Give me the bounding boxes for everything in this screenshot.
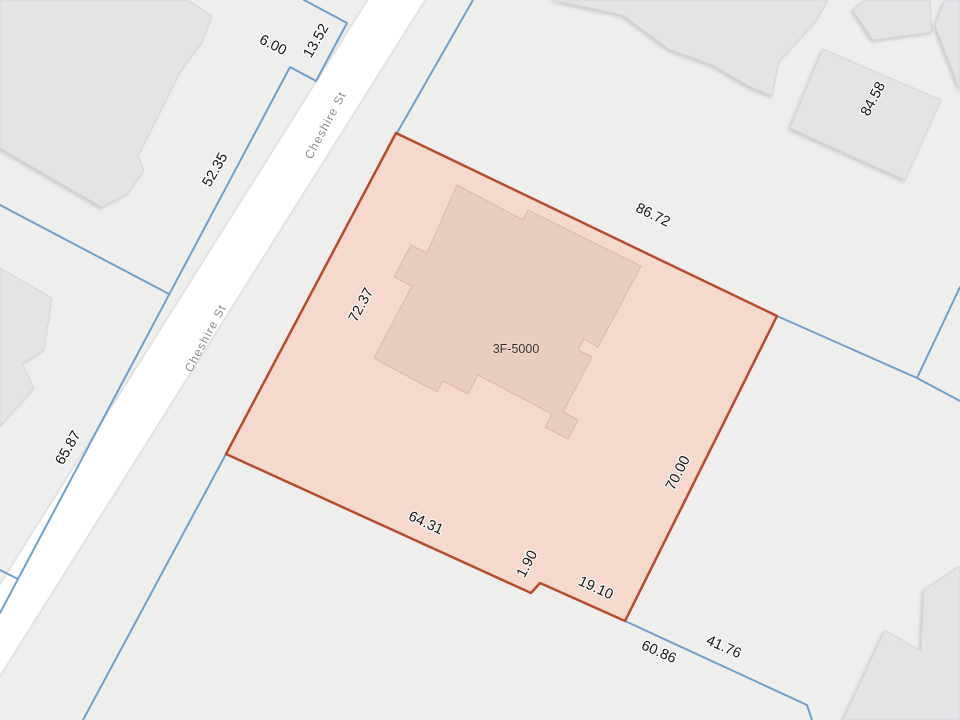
parcel-id-label: 3F-5000 (493, 342, 540, 356)
parcel-map-canvas[interactable]: 6.0013.5252.3565.8784.5886.7272.3770.006… (0, 0, 960, 720)
